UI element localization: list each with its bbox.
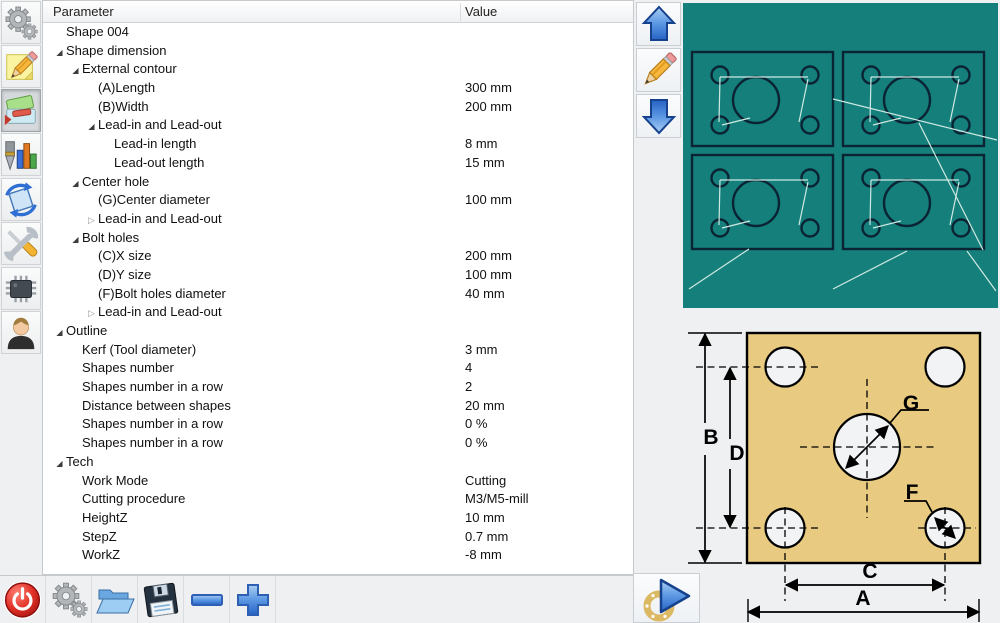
parameter-name: Lead-out length bbox=[114, 155, 204, 170]
parameter-value[interactable]: 8 mm bbox=[465, 135, 498, 154]
parameter-value[interactable]: 3 mm bbox=[465, 341, 498, 360]
dimension-label-C: C bbox=[862, 560, 877, 583]
arrow-up-icon bbox=[639, 4, 679, 44]
parameter-value[interactable]: 40 mm bbox=[465, 285, 505, 304]
gears-icon bbox=[49, 580, 89, 620]
parameter-value[interactable]: 300 mm bbox=[465, 79, 512, 98]
dimension-label-G: G bbox=[903, 392, 919, 415]
table-row[interactable]: ◢Tech bbox=[43, 453, 633, 472]
wrench-screwdriver-icon bbox=[2, 225, 40, 263]
parameter-name: Cutting procedure bbox=[82, 491, 185, 506]
table-row[interactable]: (B)Width200 mm bbox=[43, 98, 633, 117]
parameter-value[interactable]: 20 mm bbox=[465, 397, 505, 416]
drill-chart-icon bbox=[2, 136, 40, 174]
table-row[interactable]: ▷Lead-in and Lead-out bbox=[43, 210, 633, 229]
table-row[interactable]: (F)Bolt holes diameter40 mm bbox=[43, 285, 633, 304]
dimension-diagram: B D G F C A bbox=[680, 311, 1000, 623]
table-row[interactable]: ◢Lead-in and Lead-out bbox=[43, 116, 633, 135]
parameter-value[interactable]: 200 mm bbox=[465, 247, 512, 266]
sidebar-item-rotate[interactable] bbox=[1, 178, 41, 221]
table-row[interactable]: Lead-in length8 mm bbox=[43, 135, 633, 154]
parameter-name: Lead-in and Lead-out bbox=[98, 304, 222, 319]
parameter-name: StepZ bbox=[82, 529, 117, 544]
dimension-label-F: F bbox=[906, 481, 919, 504]
parameter-name: (A)Length bbox=[98, 80, 155, 95]
settings-button[interactable] bbox=[46, 576, 92, 623]
table-row[interactable]: (A)Length300 mm bbox=[43, 79, 633, 98]
table-row[interactable]: (D)Y size100 mm bbox=[43, 266, 633, 285]
parameter-name: Shapes number in a row bbox=[82, 435, 223, 450]
parameter-name: HeightZ bbox=[82, 510, 128, 525]
table-row[interactable]: Shapes number in a row2 bbox=[43, 378, 633, 397]
parameter-value[interactable]: 100 mm bbox=[465, 266, 512, 285]
parameter-name: Center hole bbox=[82, 174, 149, 189]
tree-collapsed-icon[interactable]: ▷ bbox=[85, 211, 98, 230]
note-pencil-icon bbox=[2, 48, 40, 86]
play-icon bbox=[637, 573, 697, 623]
sidebar-item-hardware[interactable] bbox=[1, 267, 41, 310]
parameter-name: Kerf (Tool diameter) bbox=[82, 342, 196, 357]
table-row[interactable]: Work ModeCutting bbox=[43, 472, 633, 491]
sidebar-item-notes[interactable] bbox=[1, 45, 41, 88]
parameter-value[interactable]: 15 mm bbox=[465, 154, 505, 173]
table-row[interactable]: Kerf (Tool diameter)3 mm bbox=[43, 341, 633, 360]
parameter-value[interactable]: -8 mm bbox=[465, 546, 502, 565]
table-row[interactable]: WorkZ-8 mm bbox=[43, 546, 633, 565]
plus-icon bbox=[233, 580, 273, 620]
dimension-label-A: A bbox=[855, 587, 870, 610]
parameter-name: Distance between shapes bbox=[82, 398, 231, 413]
minus-icon bbox=[187, 580, 227, 620]
toolpath-preview-canvas[interactable] bbox=[683, 3, 998, 308]
parameter-name: Lead-in length bbox=[114, 136, 196, 151]
table-body: Shape 004◢Shape dimension◢External conto… bbox=[43, 23, 633, 574]
parameter-name: WorkZ bbox=[82, 547, 120, 562]
parameter-name: Work Mode bbox=[82, 473, 148, 488]
column-header-parameter: Parameter bbox=[53, 4, 114, 19]
floppy-icon bbox=[141, 580, 181, 620]
arrow-down-icon bbox=[639, 96, 679, 136]
table-row[interactable]: Distance between shapes20 mm bbox=[43, 397, 633, 416]
parameter-name: Outline bbox=[66, 323, 107, 338]
table-row[interactable]: (C)X size200 mm bbox=[43, 247, 633, 266]
table-row[interactable]: ◢Center hole bbox=[43, 173, 633, 192]
gears-icon bbox=[2, 4, 40, 42]
table-row[interactable]: Shapes number in a row0 % bbox=[43, 415, 633, 434]
parameter-name: External contour bbox=[82, 61, 177, 76]
parameter-table: Parameter Value Shape 004◢Shape dimensio… bbox=[42, 0, 634, 575]
table-row[interactable]: (G)Center diameter100 mm bbox=[43, 191, 633, 210]
parameter-name: (B)Width bbox=[98, 99, 149, 114]
power-button[interactable] bbox=[0, 576, 46, 623]
pencil-icon bbox=[639, 50, 679, 90]
column-header-value: Value bbox=[465, 4, 497, 19]
parameter-value[interactable]: 200 mm bbox=[465, 98, 512, 117]
parameter-name: Tech bbox=[66, 454, 93, 469]
parameter-value[interactable]: 0 % bbox=[465, 415, 487, 434]
parameter-name: Shape dimension bbox=[66, 43, 166, 58]
table-row[interactable]: ◢Bolt holes bbox=[43, 229, 633, 248]
bottom-toolbar bbox=[0, 575, 634, 623]
table-row[interactable]: Cutting procedureM3/M5-mill bbox=[43, 490, 633, 509]
parameter-value[interactable]: 0.7 mm bbox=[465, 528, 508, 547]
sidebar-item-settings[interactable] bbox=[1, 1, 41, 44]
column-divider[interactable] bbox=[460, 3, 461, 21]
dimension-label-D: D bbox=[729, 442, 744, 465]
table-row[interactable]: ▷Lead-in and Lead-out bbox=[43, 303, 633, 322]
parameter-name: (C)X size bbox=[98, 248, 151, 263]
folder-open-icon bbox=[95, 580, 135, 620]
parameter-value[interactable]: 10 mm bbox=[465, 509, 505, 528]
sidebar-item-tools[interactable] bbox=[1, 222, 41, 265]
parameter-name: Shapes number bbox=[82, 360, 174, 375]
edit-shape-button[interactable] bbox=[636, 48, 681, 92]
table-row[interactable]: Lead-out length15 mm bbox=[43, 154, 633, 173]
sidebar-item-material[interactable] bbox=[1, 89, 41, 132]
tree-collapsed-icon[interactable]: ▷ bbox=[85, 304, 98, 323]
parameter-value[interactable]: Cutting bbox=[465, 472, 506, 491]
material-icon bbox=[2, 92, 40, 130]
parameter-value[interactable]: 0 % bbox=[465, 434, 487, 453]
sidebar-item-user[interactable] bbox=[1, 311, 41, 354]
user-icon bbox=[2, 314, 40, 352]
zoom-in-button[interactable] bbox=[230, 576, 276, 623]
parameter-name: Bolt holes bbox=[82, 230, 139, 245]
dimension-label-B: B bbox=[703, 426, 718, 449]
previous-shape-button[interactable] bbox=[636, 2, 681, 46]
rotate-icon bbox=[2, 181, 40, 219]
table-row[interactable]: Shapes number in a row0 % bbox=[43, 434, 633, 453]
zoom-out-button[interactable] bbox=[184, 576, 230, 623]
parameter-name: Shape 004 bbox=[66, 24, 129, 39]
parameter-name: (D)Y size bbox=[98, 267, 151, 282]
power-icon bbox=[0, 577, 45, 623]
table-header: Parameter Value bbox=[43, 1, 633, 23]
parameter-value[interactable]: 100 mm bbox=[465, 191, 512, 210]
table-row[interactable]: ◢External contour bbox=[43, 60, 633, 79]
table-row[interactable]: Shapes number4 bbox=[43, 359, 633, 378]
parameter-name: Lead-in and Lead-out bbox=[98, 117, 222, 132]
table-row[interactable]: ◢Outline bbox=[43, 322, 633, 341]
sidebar-item-tool-stats[interactable] bbox=[1, 133, 41, 176]
run-button[interactable] bbox=[633, 573, 700, 623]
parameter-value[interactable]: M3/M5-mill bbox=[465, 490, 529, 509]
parameter-name: (F)Bolt holes diameter bbox=[98, 286, 226, 301]
chip-icon bbox=[2, 270, 40, 308]
parameter-name: Shapes number in a row bbox=[82, 416, 223, 431]
parameter-name: (G)Center diameter bbox=[98, 192, 210, 207]
parameter-name: Lead-in and Lead-out bbox=[98, 211, 222, 226]
table-row[interactable]: Shape 004 bbox=[43, 23, 633, 42]
table-row[interactable]: StepZ0.7 mm bbox=[43, 528, 633, 547]
bolt-hole bbox=[926, 348, 965, 387]
next-shape-button[interactable] bbox=[636, 94, 681, 138]
parameter-value[interactable]: 2 bbox=[465, 378, 472, 397]
table-row[interactable]: HeightZ10 mm bbox=[43, 509, 633, 528]
parameter-name: Shapes number in a row bbox=[82, 379, 223, 394]
parameter-value[interactable]: 4 bbox=[465, 359, 472, 378]
table-row[interactable]: ◢Shape dimension bbox=[43, 42, 633, 61]
save-button[interactable] bbox=[138, 576, 184, 623]
open-file-button[interactable] bbox=[92, 576, 138, 623]
